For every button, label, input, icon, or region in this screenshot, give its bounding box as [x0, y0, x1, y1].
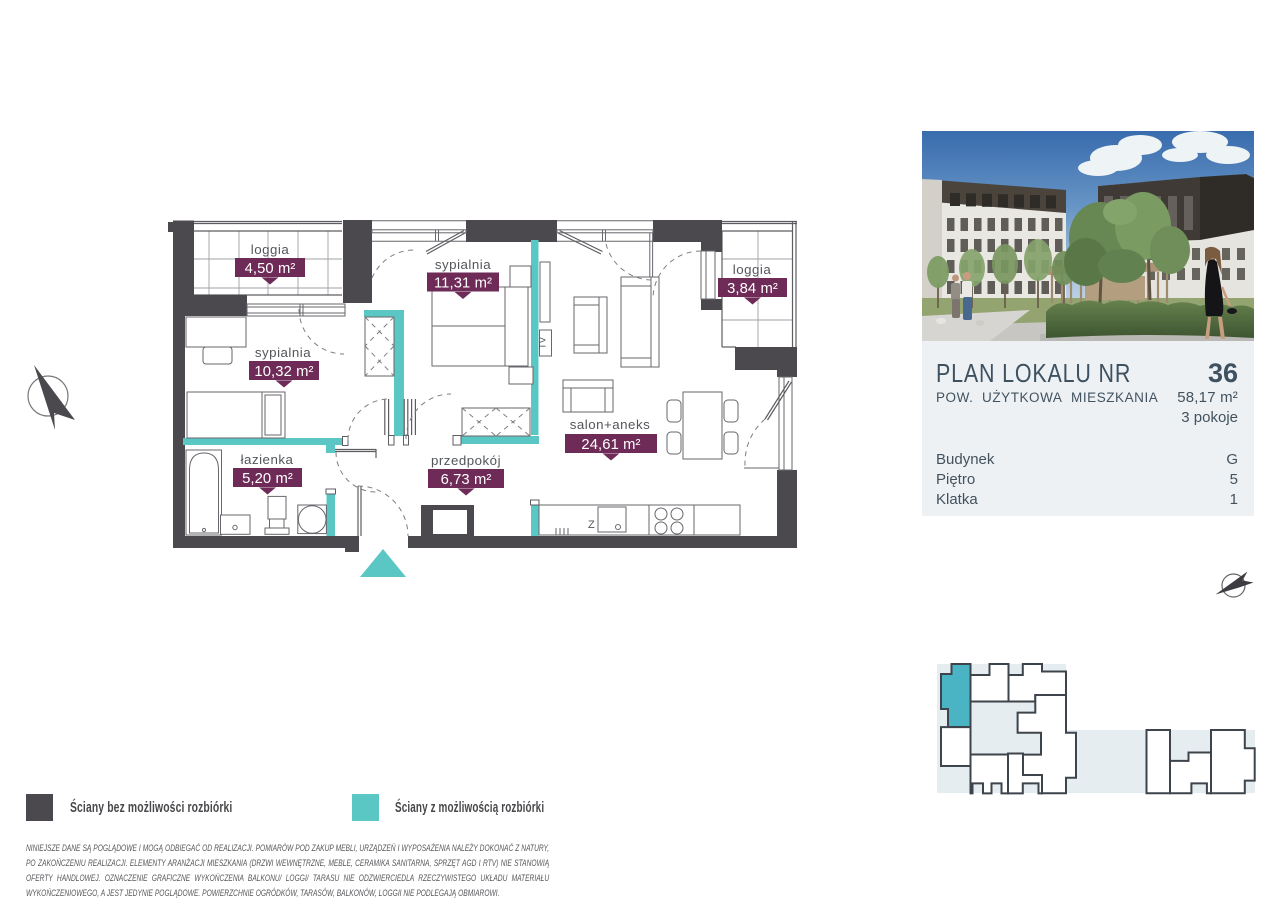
svg-text:loggia: loggia — [733, 262, 772, 277]
svg-text:sypialnia: sypialnia — [435, 257, 491, 272]
svg-text:łazienka: łazienka — [241, 452, 294, 467]
svg-text:Z: Z — [588, 519, 595, 531]
svg-text:przedpokój: przedpokój — [431, 453, 501, 468]
svg-text:3,84 m²: 3,84 m² — [727, 281, 778, 297]
svg-text:sypialnia: sypialnia — [255, 345, 311, 360]
svg-text:10,32 m²: 10,32 m² — [254, 364, 313, 380]
svg-text:5,20 m²: 5,20 m² — [242, 471, 293, 487]
svg-text:TV: TV — [538, 336, 549, 349]
svg-text:salon+aneks: salon+aneks — [570, 417, 651, 432]
svg-text:4,50 m²: 4,50 m² — [245, 261, 296, 277]
svg-text:11,31 m²: 11,31 m² — [434, 276, 492, 292]
svg-text:6,73 m²: 6,73 m² — [441, 472, 492, 488]
svg-text:24,61 m²: 24,61 m² — [581, 437, 640, 453]
svg-text:loggia: loggia — [251, 242, 290, 257]
